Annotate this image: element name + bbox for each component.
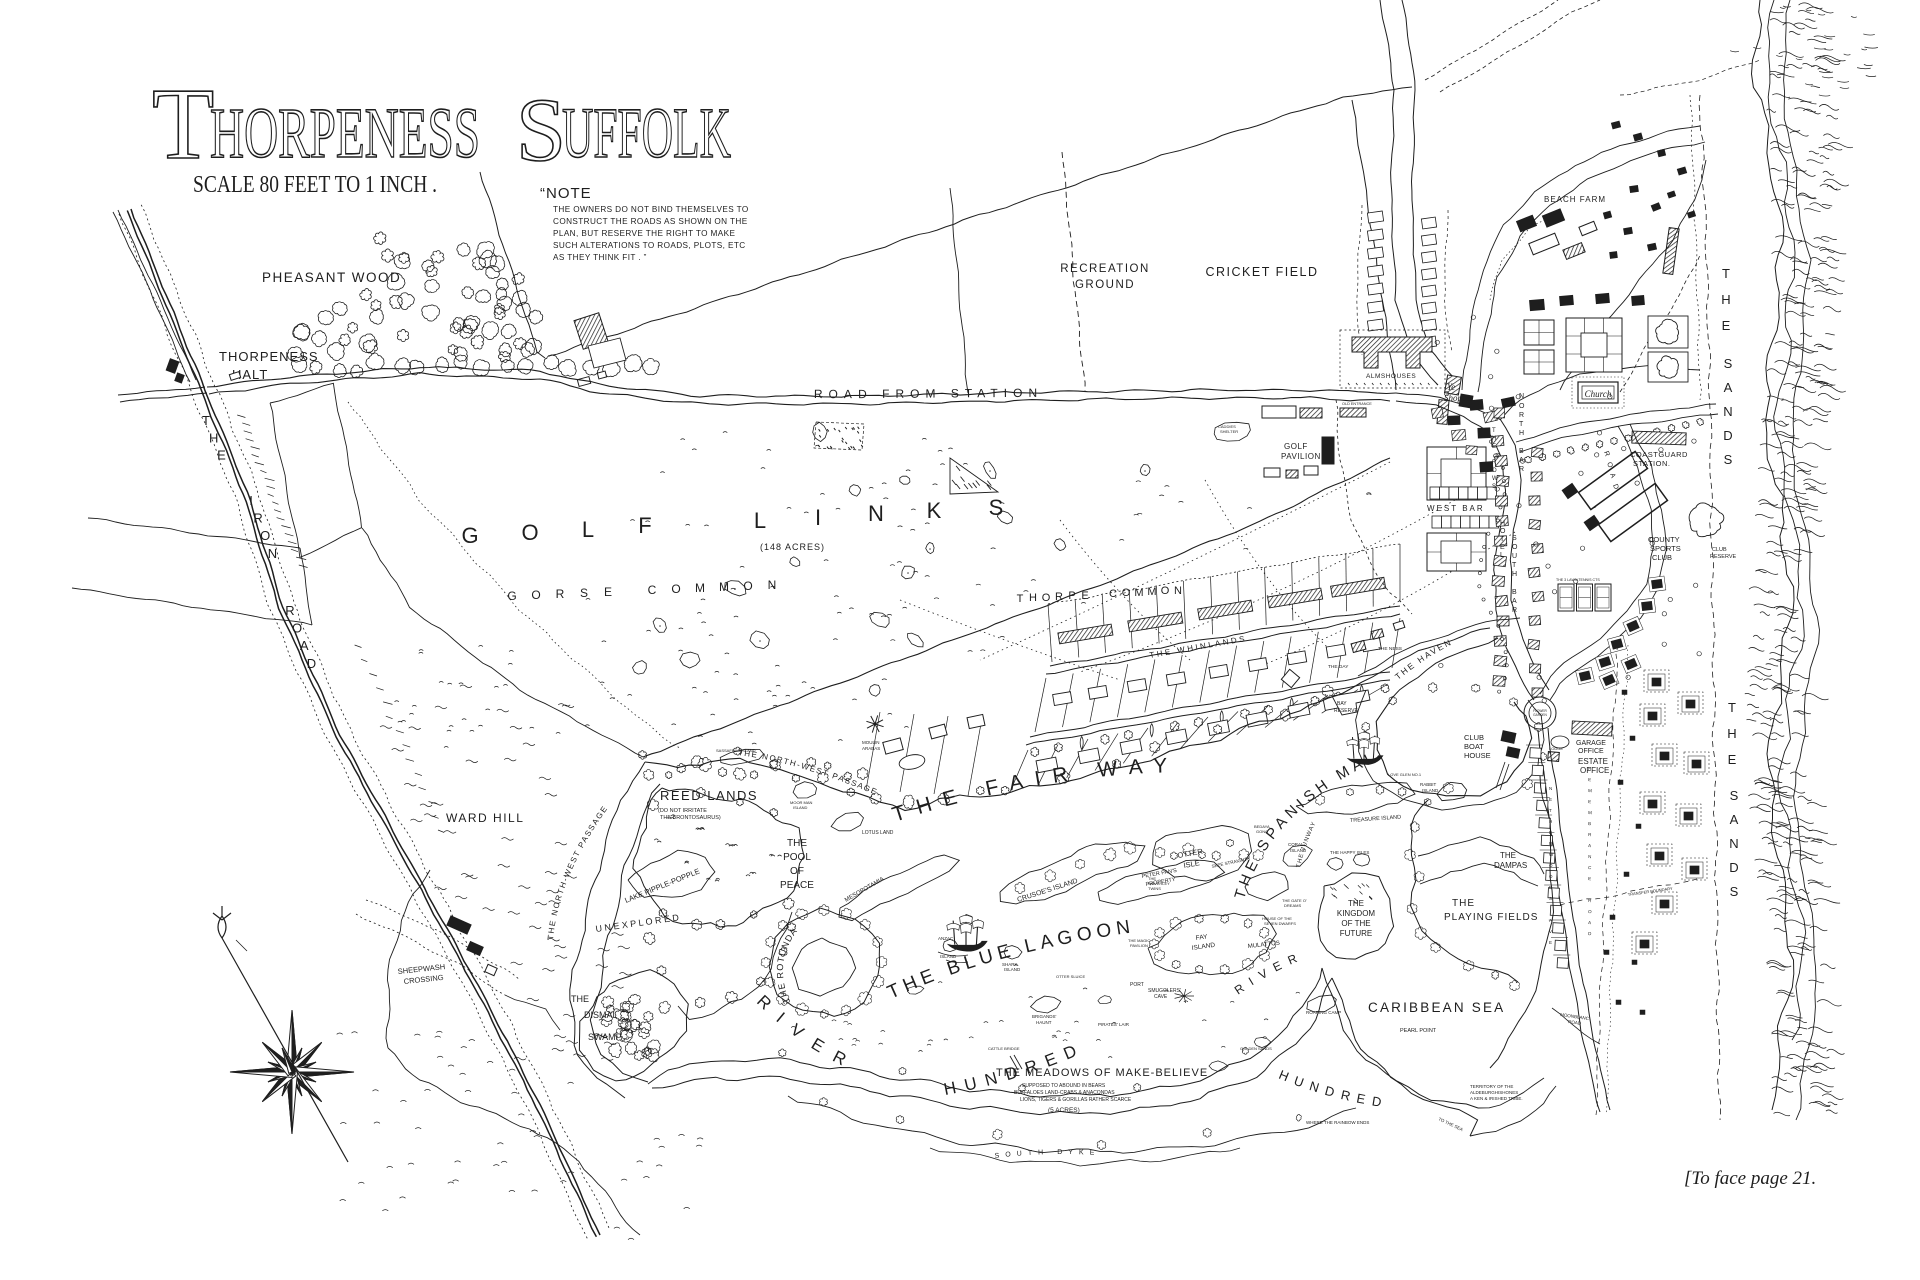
svg-text:THE: THE [1500,851,1516,860]
svg-text:BAY: BAY [1337,701,1347,707]
svg-text:D: D [307,656,316,671]
svg-text:o: o [759,638,762,643]
svg-text:UFFOLK: UFFOLK [562,93,731,173]
svg-text:H: H [1727,726,1736,741]
svg-text:THE: THE [1348,899,1364,908]
svg-text:R: R [556,587,565,601]
svg-text:R: R [1602,450,1610,457]
svg-text:WHERE THE RAINBOW ENDS: WHERE THE RAINBOW ENDS [1306,1120,1369,1125]
svg-text:CLUB: CLUB [1464,733,1484,742]
svg-text:N: N [768,578,777,592]
svg-text:THE FAIR WAY: THE FAIR WAY [890,754,1180,827]
svg-text:DISMAL: DISMAL [584,1010,618,1020]
svg-text:DAMPAS: DAMPAS [1494,861,1527,870]
svg-text:E: E [1549,797,1552,802]
svg-text:RESERVE: RESERVE [1334,708,1358,714]
svg-text:THE NORTH-WEST PASSAGE: THE NORTH-WEST PASSAGE [738,748,880,797]
svg-text:B: B [1519,448,1524,455]
svg-text:OTTER: OTTER [1177,847,1204,860]
svg-text:THE HAPPY ISLES: THE HAPPY ISLES [1330,850,1369,855]
svg-text:T: T [152,68,214,181]
svg-text:OF THE: OF THE [1341,919,1370,928]
svg-text:B: B [1512,589,1517,596]
svg-text:TO THE SEA: TO THE SEA [1438,1116,1464,1132]
svg-text:ROARING CAMP: ROARING CAMP [1306,1010,1341,1015]
svg-text:[To face page 21.: [To face page 21. [1684,1168,1816,1189]
svg-text:I: I [249,493,253,508]
svg-text:THE: THE [787,838,807,849]
svg-text:R: R [1512,607,1517,614]
svg-text:T: T [1728,700,1736,715]
svg-text:OFFICE: OFFICE [1580,766,1609,775]
svg-text:ISLAND: ISLAND [1004,967,1021,972]
svg-text:GOLF: GOLF [1284,442,1308,451]
svg-text:PLAN, BUT RESERVE THE RIGHT TO: PLAN, BUT RESERVE THE RIGHT TO MAKE [553,229,735,238]
svg-text:H: H [1721,292,1730,307]
svg-text:D: D [1723,428,1732,443]
svg-text:M: M [1147,586,1156,598]
svg-text:S: S [580,586,588,600]
svg-text:o: o [989,468,992,473]
svg-text:K: K [927,498,942,523]
svg-text:THE 3 LAWN TENNIS CTS: THE 3 LAWN TENNIS CTS [1556,578,1600,582]
svg-text:HAUNT: HAUNT [1036,1020,1052,1025]
svg-text:SWAMP: SWAMP [588,1032,622,1042]
svg-text:RESERVE: RESERVE [1710,554,1737,560]
svg-text:PEACE: PEACE [780,880,814,891]
svg-text:N: N [1588,854,1592,859]
svg-text:C: C [1109,588,1117,600]
svg-text:(148 ACRES): (148 ACRES) [760,542,825,552]
svg-text:LOTUS LAND: LOTUS LAND [862,830,894,836]
svg-text:OTTER SLUICE: OTTER SLUICE [1056,974,1085,979]
svg-text:L: L [1500,552,1504,559]
svg-text:THORPENESS: THORPENESS [219,349,319,364]
svg-text:ISLAND: ISLAND [1422,788,1439,793]
svg-text:BUFFALOES LAND-CRABS & ANAC: BUFFALOES LAND-CRABS & ANACONDAS [1014,1090,1115,1096]
svg-text:A: A [1588,920,1591,925]
svg-text:THE NORTH-WEST PASSAGE: THE NORTH-WEST PASSAGE [546,804,610,941]
svg-text:CRUSOE'S ISLAND: CRUSOE'S ISLAND [1016,878,1078,904]
svg-text:HUNDRED: HUNDRED [1277,1067,1390,1111]
svg-text:R: R [1519,412,1524,419]
svg-text:SUPPOSED TO ABOUND IN BEAR: SUPPOSED TO ABOUND IN BEARS [1022,1083,1106,1089]
svg-text:FAY: FAY [1195,933,1208,942]
svg-text:WEST BAR: WEST BAR [1427,504,1485,513]
svg-text:ALMSHOUSES: ALMSHOUSES [1366,373,1416,380]
svg-text:SEVEN DWARFS: SEVEN DWARFS [1264,921,1296,926]
svg-text:ANZAC: ANZAC [938,936,954,941]
svg-text:ISLAND: ISLAND [1191,942,1216,952]
svg-text:“NOTE: “NOTE [540,185,592,202]
svg-text:MULATTOS: MULATTOS [1248,941,1281,950]
svg-text:M: M [1588,810,1592,815]
svg-text:T: T [1512,562,1517,569]
svg-text:C: C [648,583,657,597]
svg-text:PORT: PORT [1130,982,1144,988]
svg-text:SPORTS: SPORTS [1650,544,1681,553]
svg-text:SOUTH DYKE: SOUTH DYKE [994,1149,1100,1160]
svg-text:OFFICE: OFFICE [1578,748,1604,755]
svg-text:E: E [1588,777,1591,782]
svg-text:POOL: POOL [783,852,811,863]
svg-text:MOULIN: MOULIN [862,740,880,745]
svg-text:D: D [1729,860,1738,875]
svg-text:T: T [1549,808,1552,813]
svg-text:I: I [815,505,821,530]
svg-text:THE WHINLANDS: THE WHINLANDS [1149,634,1248,660]
svg-text:L: L [582,517,594,542]
svg-text:E: E [1081,590,1088,602]
svg-text:HORPENESS: HORPENESS [210,93,480,173]
svg-text:CLUB: CLUB [1652,553,1672,562]
svg-text:THE ROTUNDA: THE ROTUNDA [775,926,800,1005]
svg-text:o: o [907,570,910,575]
svg-text:FUTURE: FUTURE [1340,929,1372,938]
svg-text:COASTGUARD: COASTGUARD [1630,450,1688,459]
svg-text:E: E [1588,876,1591,881]
svg-text:SCALE 80 FEET TO 1 INCH .: SCALE 80 FEET TO 1 INCH . [193,172,437,198]
svg-text:GARDEN: GARDEN [1533,713,1547,717]
svg-text:BEACH FARM: BEACH FARM [1544,195,1606,204]
svg-text:H: H [1500,520,1505,527]
svg-text:CONSTRUCT THE ROADS AS SHOWN O: CONSTRUCT THE ROADS AS SHOWN ON THE [553,217,748,226]
svg-text:N: N [1723,404,1732,419]
svg-text:D: D [1588,931,1592,936]
svg-text:E: E [1722,318,1731,333]
svg-text:HOUSE: HOUSE [1464,751,1491,760]
svg-text:LOVE GLEN NO.1: LOVE GLEN NO.1 [1388,772,1422,777]
svg-text:U: U [1512,553,1517,560]
svg-text:THE: THE [1452,898,1475,909]
svg-text:R: R [253,511,262,526]
svg-text:ISLAND: ISLAND [793,805,808,810]
svg-text:ROAD FROM STATION: ROAD FROM STATION [814,386,1043,401]
svg-text:O: O [1042,592,1051,604]
svg-text:O: O [260,528,270,543]
svg-text:S: S [1512,535,1517,542]
svg-text:G: G [461,523,478,548]
svg-text:SUCH ALTERATIONS TO ROADS, PLO: SUCH ALTERATIONS TO ROADS, PLOTS, ETC [553,241,746,250]
svg-text:CAVE: CAVE [1154,994,1168,1000]
svg-text:H: H [1512,571,1517,578]
svg-text:PAVILION: PAVILION [1130,943,1148,948]
svg-text:E: E [1549,940,1552,945]
svg-text:MESOPOTAMIA: MESOPOTAMIA [844,876,885,903]
svg-text:A: A [1724,380,1733,395]
svg-text:S: S [1730,884,1739,899]
svg-text:E: E [217,448,226,463]
svg-text:O: O [1519,403,1525,410]
svg-text:o: o [659,623,662,628]
svg-text:LAKE PIPPLE-POPPLE: LAKE PIPPLE-POPPLE [623,867,701,905]
svg-text:LODGE: LODGE [1549,746,1563,751]
svg-text:T: T [1017,593,1024,605]
svg-text:S: S [1492,484,1496,490]
svg-text:CATTLE BRIDGE: CATTLE BRIDGE [988,1046,1020,1051]
svg-text:N: N [1729,836,1738,851]
svg-text:G: G [507,589,516,603]
svg-text:O: O [1500,528,1506,535]
svg-text:E: E [1588,799,1591,804]
svg-text:(5 ACRES): (5 ACRES) [1048,1107,1080,1114]
svg-text:PLAYING FIELDS: PLAYING FIELDS [1444,912,1538,923]
svg-text:R: R [1588,832,1592,837]
svg-text:A: A [1588,843,1591,848]
svg-text:B: B [1588,821,1591,826]
svg-text:H: H [1519,430,1524,437]
svg-text:S: S [989,495,1004,520]
svg-text:SHELTER: SHELTER [1220,429,1238,434]
svg-text:Ye: Ye [1447,382,1455,392]
svg-text:T: T [1492,428,1496,434]
svg-text:O: O [1512,544,1518,551]
svg-text:CORAL: CORAL [1288,842,1304,847]
svg-text:N: N [268,546,277,561]
svg-text:(DO NOT IRRITATE: (DO NOT IRRITATE [658,808,707,814]
svg-text:GROUND: GROUND [1075,279,1135,291]
svg-text:N: N [1549,786,1552,791]
svg-text:O: O [671,582,680,596]
svg-text:CRICKET FIELD: CRICKET FIELD [1205,265,1318,279]
svg-text:C: C [1588,865,1592,870]
svg-text:RABBIT: RABBIT [1420,782,1437,787]
svg-text:N: N [1519,393,1524,400]
svg-text:PEARL POINT: PEARL POINT [1400,1028,1437,1034]
svg-text:ARABAS: ARABAS [862,746,880,751]
svg-text:OF: OF [790,866,804,877]
svg-text:A: A [1512,598,1517,605]
svg-text:RIVER: RIVER [753,991,862,1076]
svg-text:A: A [1730,812,1739,827]
svg-text:o: o [929,546,932,551]
svg-text:THE BRONTOSAURUS): THE BRONTOSAURUS) [660,815,721,821]
svg-text:O: O [1588,909,1592,914]
svg-text:RECREATION: RECREATION [1060,263,1150,275]
svg-text:Shoppe: Shoppe [1444,393,1471,403]
svg-text:T: T [202,413,210,428]
svg-text:S: S [1724,452,1733,467]
svg-text:BOAT: BOAT [1464,742,1484,751]
svg-text:THE: THE [571,994,589,1004]
svg-text:CLUB: CLUB [1712,547,1727,553]
svg-text:THE NESS: THE NESS [1378,646,1402,652]
svg-text:DREAMS: DREAMS [1284,903,1301,908]
svg-text:TREASURE ISLAND: TREASURE ISLAND [1350,814,1402,824]
svg-text:PAVILION: PAVILION [1281,452,1321,461]
svg-text:R: R [1519,466,1524,473]
svg-text:H: H [1029,592,1037,604]
svg-text:GOLDEN SANDS: GOLDEN SANDS [1240,1046,1272,1051]
svg-text:BRIGANDS': BRIGANDS' [1032,1014,1057,1019]
svg-text:S: S [516,81,566,180]
svg-text:AS THEY THINK FIT . ”: AS THEY THINK FIT . ” [553,253,647,262]
svg-text:R: R [285,603,294,618]
svg-text:O: O [743,579,752,593]
svg-text:O: O [1549,874,1553,879]
svg-text:S: S [1724,356,1733,371]
svg-text:SASSAFRAS ISLAND: SASSAFRAS ISLAND [716,748,756,753]
svg-text:THE OWNERS DO NOT BIND THEMSEL: THE OWNERS DO NOT BIND THEMSELVES TO [553,205,749,214]
svg-text:H: H [209,430,218,445]
svg-text:E: E [604,585,612,599]
svg-text:E: E [1500,544,1505,551]
svg-text:TERRITORY OF THE: TERRITORY OF THE [1470,1084,1513,1089]
svg-text:KINGDOM: KINGDOM [1337,909,1376,918]
svg-text:O: O [292,621,302,636]
svg-text:CARIBBEAN SEA: CARIBBEAN SEA [1368,1000,1505,1015]
svg-text:T: T [1519,421,1524,428]
svg-text:OLD ENTRANCE: OLD ENTRANCE [1342,402,1372,406]
svg-text:S: S [1730,788,1739,803]
svg-text:ROAD: ROAD [1568,1019,1582,1026]
svg-text:O: O [521,520,538,545]
svg-text:ALDEBURGHISHONES: ALDEBURGHISHONES [1470,1090,1518,1095]
svg-text:O: O [531,588,540,602]
svg-text:W: W [1492,476,1498,482]
svg-text:A KEN & IRISHED TRIBE.: A KEN & IRISHED TRIBE. [1470,1096,1523,1101]
svg-text:T: T [1500,536,1505,543]
svg-text:LIONS, TIGERS & GORILLAS RATHE: LIONS, TIGERS & GORILLAS RATHER SCARCE [1020,1097,1132,1103]
svg-text:N: N [1174,585,1182,597]
svg-text:L: L [754,508,766,533]
svg-text:F: F [638,513,651,538]
svg-text:O: O [1161,585,1170,597]
svg-text:E: E [1728,752,1737,767]
svg-text:ESTATE: ESTATE [1578,757,1608,766]
svg-text:WARD HILL: WARD HILL [446,811,524,825]
svg-text:REED LANDS: REED LANDS [660,788,758,803]
svg-text:T: T [1722,266,1730,281]
svg-text:A: A [300,638,309,653]
svg-text:PHEASANT WOOD: PHEASANT WOOD [262,270,401,285]
svg-text:U N E X P L O R E D: U N E X P L O R E D [595,912,680,934]
svg-text:S: S [1549,896,1552,901]
svg-text:E: E [1492,444,1496,450]
svg-text:M: M [1588,788,1592,793]
svg-text:M: M [695,581,705,595]
svg-text:N: N [868,501,884,526]
svg-text:THE DAY: THE DAY [1328,664,1349,670]
svg-text:o: o [1144,468,1147,473]
svg-text:GARAGE: GARAGE [1576,740,1606,747]
